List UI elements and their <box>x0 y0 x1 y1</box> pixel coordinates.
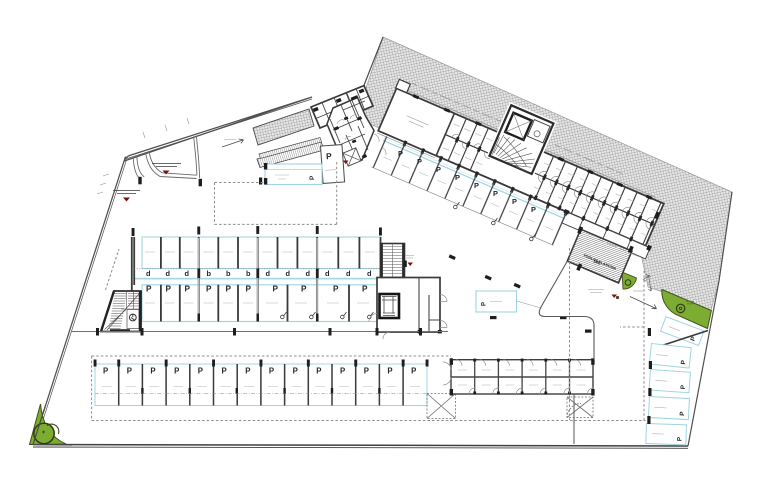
svg-text:P: P <box>531 205 536 214</box>
svg-text:P: P <box>301 285 307 294</box>
svg-text:P: P <box>362 285 368 294</box>
svg-text:P: P <box>309 175 316 180</box>
svg-text:P: P <box>273 285 279 294</box>
svg-text:P: P <box>512 197 517 206</box>
svg-text:P: P <box>474 181 479 190</box>
svg-text:P: P <box>127 367 132 376</box>
svg-text:b: b <box>207 269 212 278</box>
svg-text:P: P <box>482 302 488 306</box>
svg-text:P: P <box>146 285 152 294</box>
svg-text:P: P <box>316 367 321 376</box>
svg-text:d: d <box>286 269 291 278</box>
svg-text:P: P <box>185 285 191 294</box>
svg-text:d: d <box>306 269 311 278</box>
svg-text:d: d <box>325 269 330 278</box>
svg-text:P: P <box>340 367 345 376</box>
svg-text:P: P <box>206 285 212 294</box>
svg-text:b: b <box>226 269 231 278</box>
svg-text:P: P <box>417 157 422 166</box>
svg-text:P: P <box>166 285 172 294</box>
svg-text:b: b <box>246 269 251 278</box>
svg-text:d: d <box>166 269 171 278</box>
svg-text:P: P <box>174 367 179 376</box>
svg-text:P: P <box>198 367 203 376</box>
svg-text:P: P <box>398 149 403 158</box>
svg-text:P: P <box>269 367 274 376</box>
svg-text:P: P <box>387 367 392 376</box>
svg-text:P: P <box>245 367 250 376</box>
svg-text:P: P <box>246 285 252 294</box>
svg-text:P: P <box>493 189 498 198</box>
svg-text:P: P <box>103 367 108 376</box>
svg-text:P: P <box>455 173 460 182</box>
svg-text:P: P <box>364 367 369 376</box>
svg-text:d: d <box>367 269 372 278</box>
svg-text:d: d <box>346 269 351 278</box>
svg-text:P: P <box>222 367 227 376</box>
svg-text:P: P <box>436 165 441 174</box>
svg-text:d: d <box>146 269 151 278</box>
svg-text:P: P <box>411 367 416 376</box>
svg-text:d: d <box>266 269 271 278</box>
svg-text:P: P <box>226 285 232 294</box>
svg-text:P: P <box>150 367 155 376</box>
svg-text:P: P <box>326 151 333 161</box>
svg-text:P: P <box>333 285 339 294</box>
svg-text:P: P <box>293 367 298 376</box>
svg-text:d: d <box>185 269 190 278</box>
